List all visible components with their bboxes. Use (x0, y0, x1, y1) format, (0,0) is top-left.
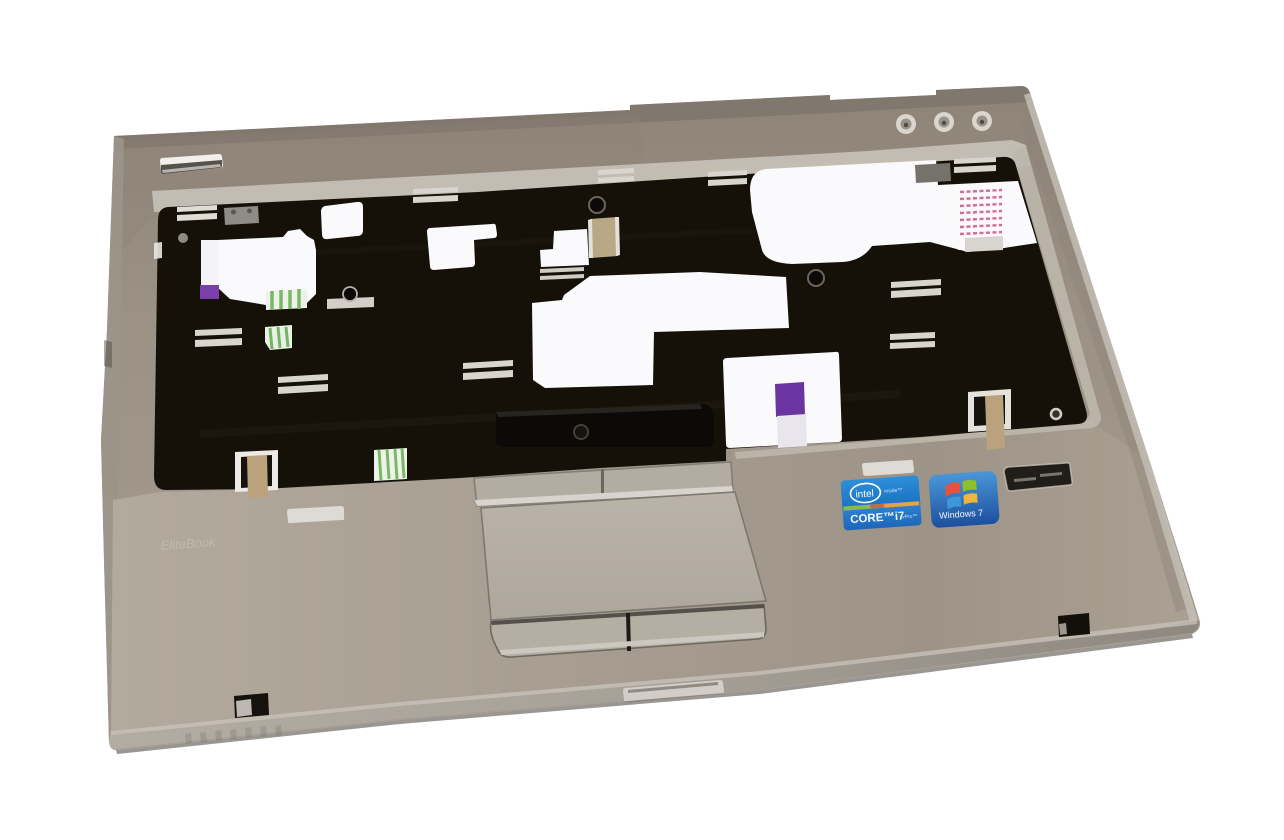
svg-text:vPro™: vPro™ (902, 513, 918, 520)
svg-text:intel: intel (855, 488, 874, 500)
svg-text:inside™: inside™ (884, 487, 902, 494)
